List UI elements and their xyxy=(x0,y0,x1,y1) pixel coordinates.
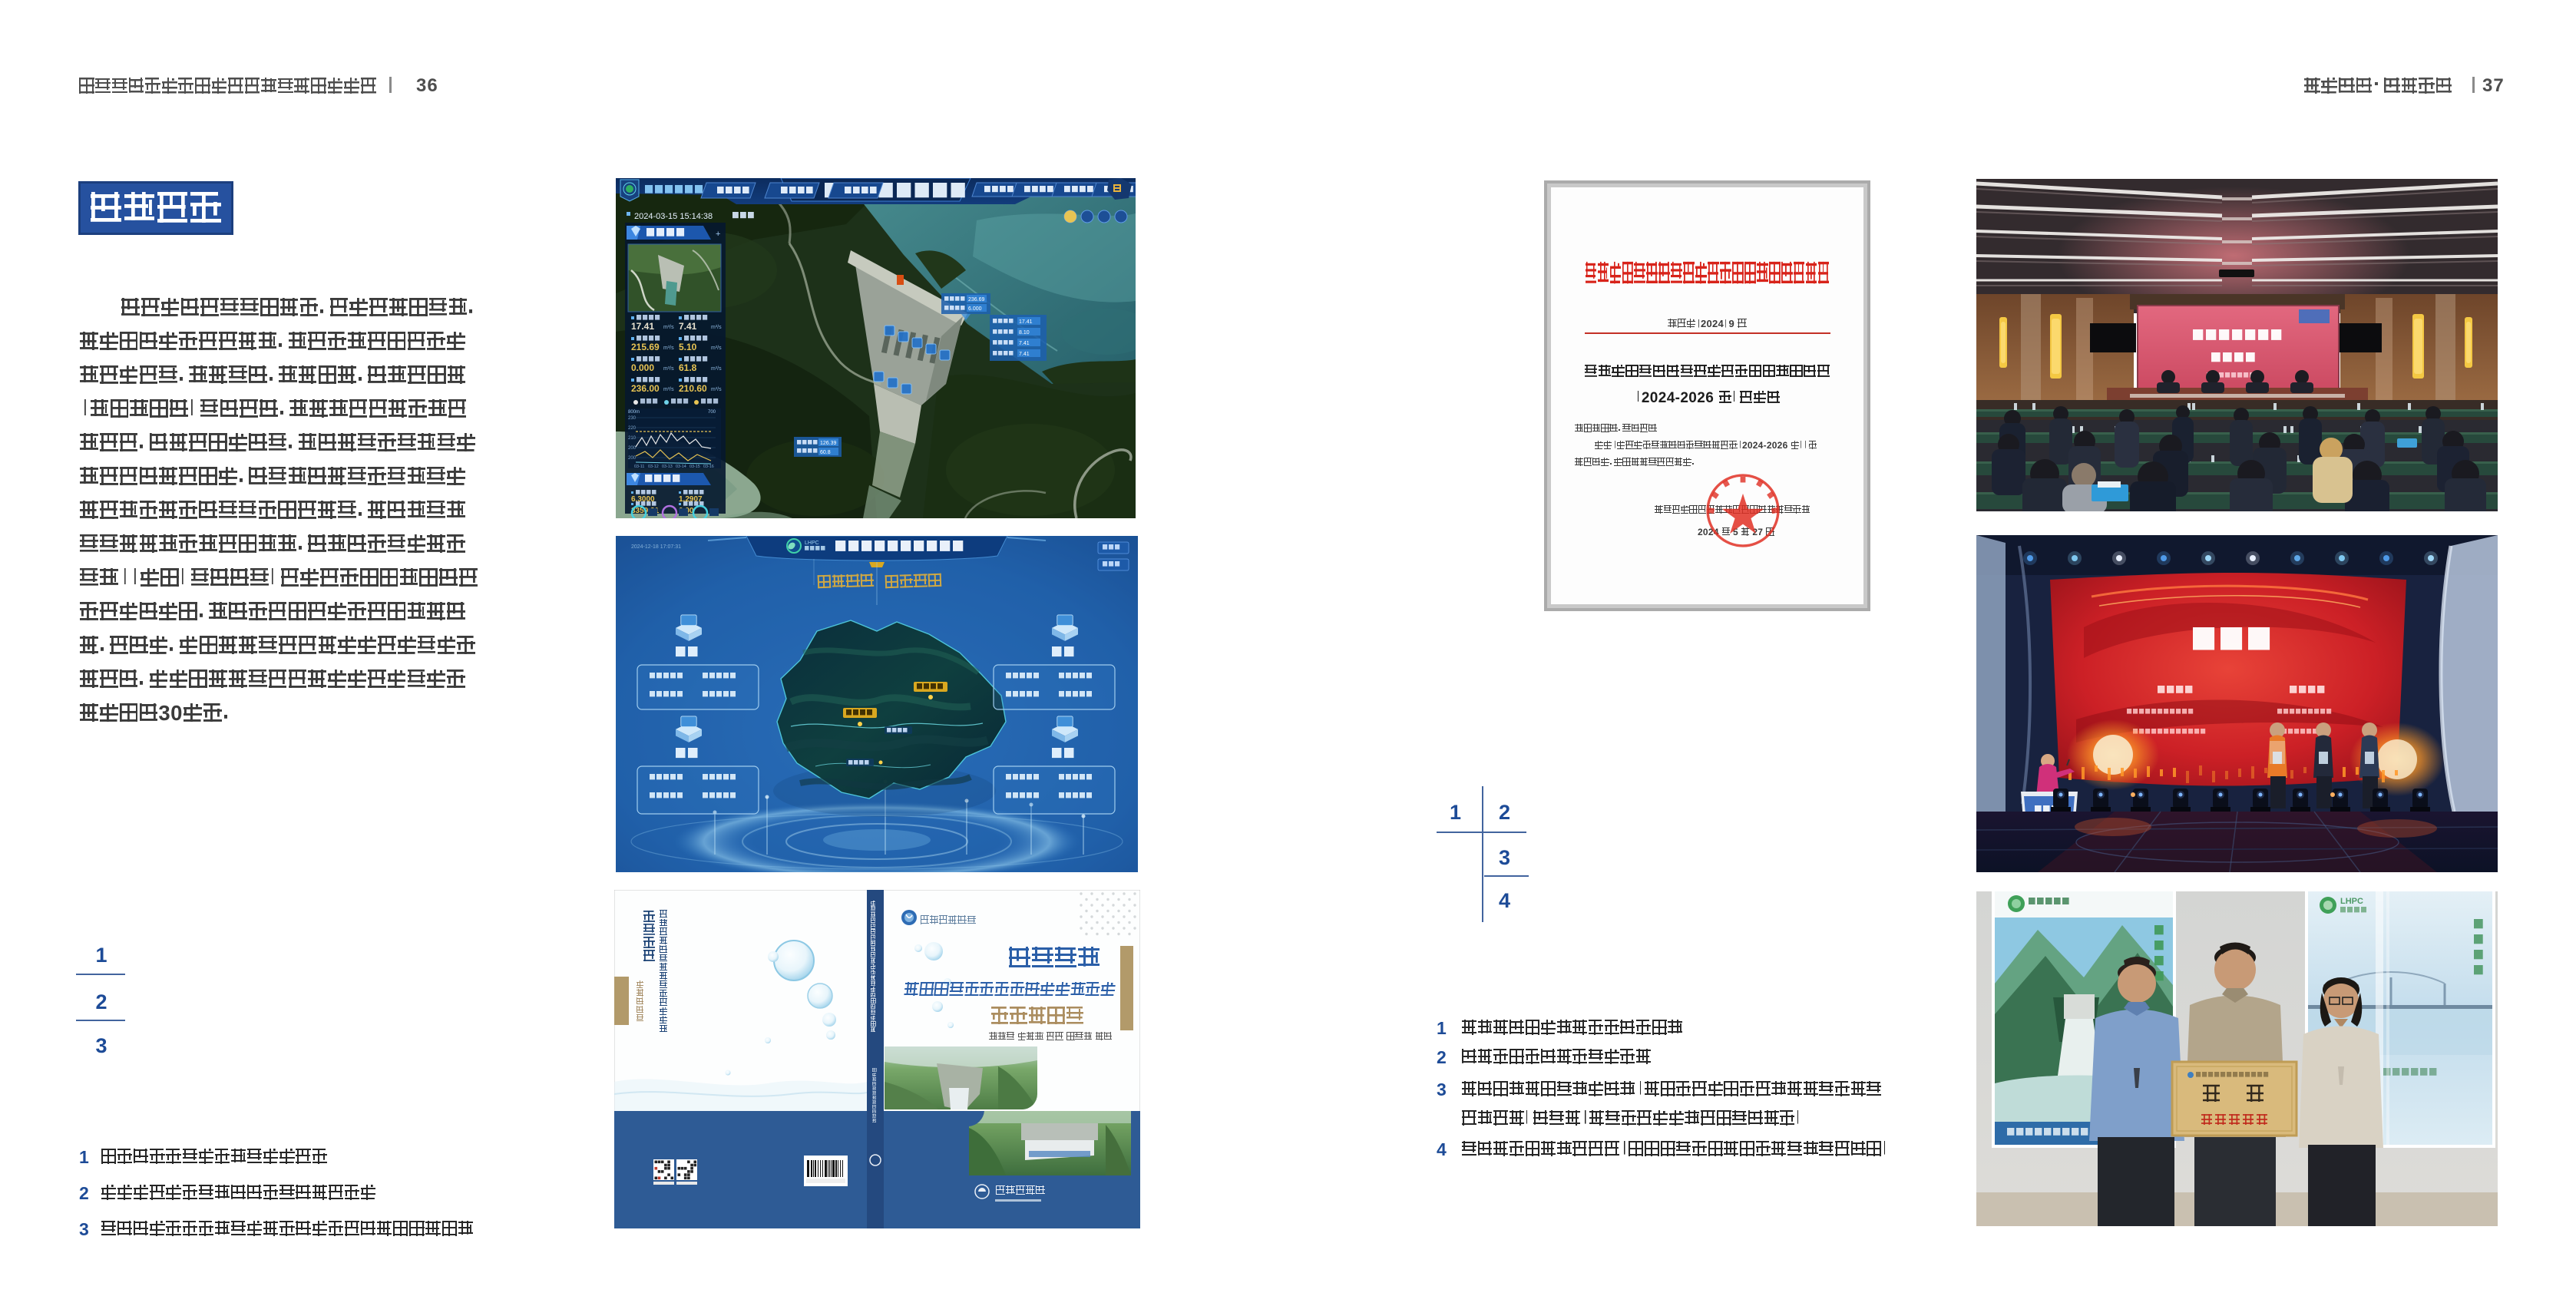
svg-text:0.000: 0.000 xyxy=(631,362,654,373)
svg-text:210: 210 xyxy=(628,436,637,441)
svg-text:m³/s: m³/s xyxy=(663,346,674,351)
svg-text:230: 230 xyxy=(628,416,637,421)
svg-text:+: + xyxy=(716,230,720,239)
svg-text:7.41: 7.41 xyxy=(1019,352,1030,357)
svg-text:60.8: 60.8 xyxy=(820,450,831,455)
svg-text:236.69: 236.69 xyxy=(968,297,985,303)
svg-text:m³/s: m³/s xyxy=(663,366,674,372)
svg-text:LHPC: LHPC xyxy=(805,541,819,546)
svg-text:7.41: 7.41 xyxy=(679,321,697,332)
svg-text:61.8: 61.8 xyxy=(679,362,697,373)
svg-text:03-12: 03-12 xyxy=(648,465,659,469)
svg-text:800m: 800m xyxy=(628,410,640,415)
svg-text:m³/s: m³/s xyxy=(711,387,722,392)
svg-text:m³/s: m³/s xyxy=(663,325,674,330)
svg-text:03-16: 03-16 xyxy=(703,465,714,469)
svg-text:200: 200 xyxy=(628,456,637,461)
svg-text:03-11: 03-11 xyxy=(634,465,644,469)
svg-text:8.10: 8.10 xyxy=(1019,330,1030,336)
svg-text:03-13: 03-13 xyxy=(662,465,673,469)
svg-text:03-14: 03-14 xyxy=(676,465,686,469)
svg-text:5.10: 5.10 xyxy=(679,342,697,352)
svg-text:m³/s: m³/s xyxy=(663,387,674,392)
svg-text:200: 200 xyxy=(628,446,637,451)
svg-text:m³/s: m³/s xyxy=(711,325,722,330)
svg-text:m³/s: m³/s xyxy=(711,346,722,351)
svg-text:2024-03-15 15:14:38: 2024-03-15 15:14:38 xyxy=(634,212,713,221)
svg-text:2024-12-18 17:07:31: 2024-12-18 17:07:31 xyxy=(631,544,681,550)
svg-text:6.000: 6.000 xyxy=(968,306,982,312)
svg-text:LHPC: LHPC xyxy=(2340,897,2363,906)
svg-text:210.60: 210.60 xyxy=(679,383,707,394)
svg-text:220: 220 xyxy=(628,426,637,431)
svg-text:215.69: 215.69 xyxy=(631,342,660,352)
svg-text:7.41: 7.41 xyxy=(1019,341,1030,346)
svg-text:700: 700 xyxy=(708,410,716,415)
svg-text:03-15: 03-15 xyxy=(689,465,700,469)
svg-text:17.41: 17.41 xyxy=(631,321,654,332)
svg-text:126.39: 126.39 xyxy=(820,441,837,446)
svg-text:17.41: 17.41 xyxy=(1019,319,1033,325)
svg-text:236.00: 236.00 xyxy=(631,383,660,394)
svg-text:m³/s: m³/s xyxy=(711,366,722,372)
